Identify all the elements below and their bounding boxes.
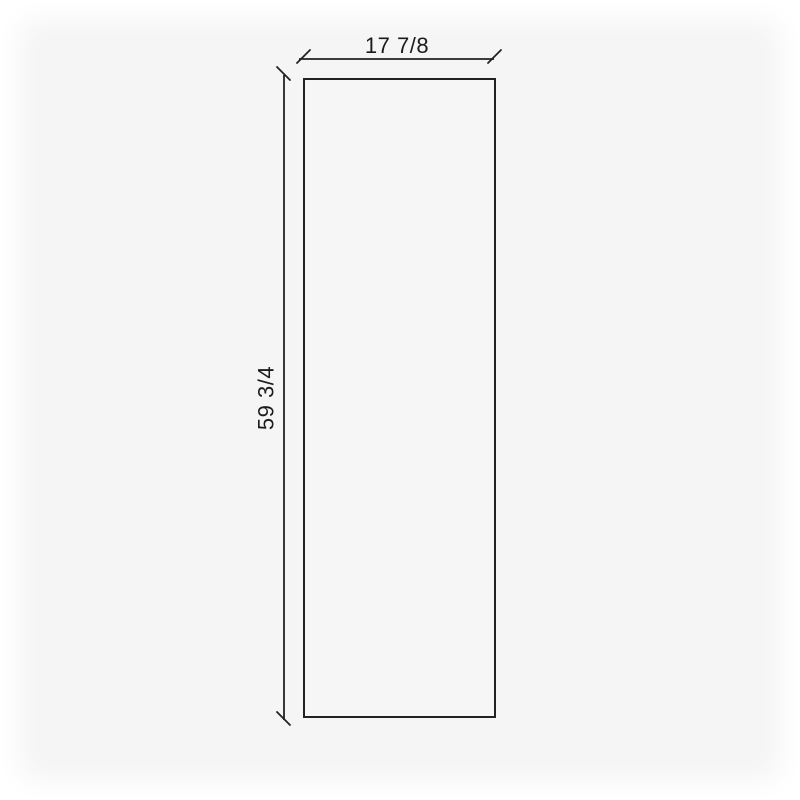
- height-dimension-label: 59 3/4: [254, 366, 279, 430]
- height-dimension: 59 3/4: [254, 67, 291, 725]
- dimension-drawing: 17 7/8 59 3/4: [0, 0, 800, 800]
- width-dimension: 17 7/8: [297, 33, 501, 63]
- width-dimension-label: 17 7/8: [365, 33, 429, 58]
- width-dimension-tick-left: [297, 50, 310, 63]
- panel-rectangle: [304, 79, 495, 717]
- width-dimension-tick-right: [488, 50, 501, 63]
- drawing-canvas: 17 7/8 59 3/4: [0, 0, 800, 800]
